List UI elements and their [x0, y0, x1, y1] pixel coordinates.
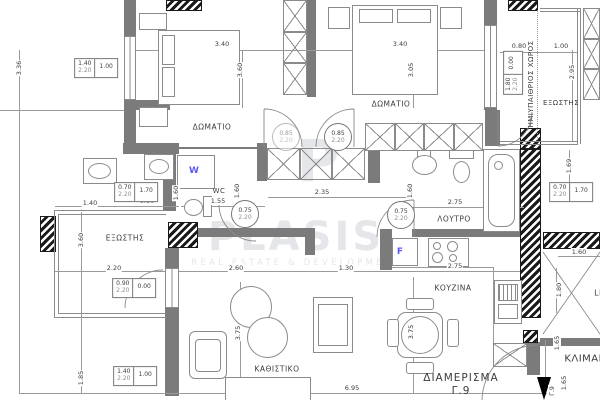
dimension-text: 2.35: [314, 188, 330, 196]
dimension-text: 3.40: [214, 40, 230, 48]
dimension-box: 0.702.201.70: [114, 182, 158, 202]
fridge-letter: F: [397, 247, 403, 257]
dimension-text: 3.60: [236, 62, 244, 78]
room-label-wc: WC: [213, 187, 226, 195]
dimension-box: 1.402.201.00: [113, 366, 157, 386]
room-label-staircase: ΚΛΙΜΑΚ: [564, 354, 600, 365]
dimension-box: 1.402.201.00: [74, 58, 118, 78]
dimension-text: 2.75: [447, 262, 463, 270]
door-dimension-circle: 0.752.20: [387, 201, 415, 229]
dimension-text: 1.65: [560, 375, 568, 391]
room-label-semi-open-space: ΗΜΙΥΠΑΙΘΡΙΟΣ ΧΩΡΟΣ: [527, 40, 535, 127]
room-label-living-room: ΚΑΘΙΣΤΙΚΟ: [254, 365, 299, 374]
room-label-bedroom-1: ΔΩΜΑΤΙΟ: [193, 123, 232, 132]
dimension-text: 1.69: [565, 158, 573, 174]
dimension-text: 6.95: [344, 384, 360, 392]
room-label-kitchen: ΚΟΥΖΙΝΑ: [435, 284, 472, 293]
room-label-lift: LI: [594, 289, 600, 298]
dimension-text: Γ.9: [548, 385, 556, 397]
dimension-text: 1.60: [172, 185, 180, 201]
dimension-text: 3.36: [15, 60, 23, 76]
dimension-text: 1.30: [338, 264, 354, 272]
apartment-title: ΔΙΑΜΕΡΙΣΜΑ: [423, 372, 498, 384]
dimension-text: 1.85: [77, 370, 85, 386]
dimension-text: 1.65: [553, 335, 561, 351]
dimension-text: 3.05: [407, 62, 415, 78]
dimension-text: 1.60: [571, 248, 587, 256]
dimension-box: 1.802.200.00: [503, 51, 523, 95]
dimension-text: 1.55: [210, 197, 226, 205]
dimension-text: 1.00: [553, 42, 569, 50]
dimension-text: 2.75: [447, 198, 463, 206]
room-label-bathroom: ΛΟΥΤΡΟ: [437, 215, 471, 224]
dimension-text: 1.80: [555, 282, 563, 298]
dimension-text: 3.75: [234, 325, 242, 341]
washing-machine-letter: W: [189, 166, 199, 176]
dimension-text: 3.40: [392, 40, 408, 48]
dimension-text: 1.40: [82, 199, 98, 207]
apartment-unit: Γ.9: [452, 385, 471, 397]
floor-plan-canvas: P PLASIS REAL ESTATE & DEVELOPMENT: [0, 0, 600, 400]
dimension-text: 2.20: [106, 264, 122, 272]
door-dimension-circle: 0.852.20: [324, 123, 352, 151]
dimension-text: 1.60: [233, 183, 241, 199]
door-dimension-circle: 0.752.20: [231, 200, 259, 228]
staircase-x: [543, 252, 600, 334]
dimension-text: 2.95: [568, 64, 576, 80]
dimension-text: 0.80: [511, 42, 527, 50]
dimension-box: 0.702.201.70: [549, 182, 593, 202]
dimension-text: 1.60: [406, 183, 414, 199]
door-dimension-circle: 0.852.20: [272, 123, 300, 151]
room-label-balcony-right: ΕΞΩΣΤΗΣ: [543, 99, 579, 107]
dimension-box: 0.902.200.00: [112, 278, 156, 298]
room-label-balcony-left: ΕΞΩΣΤΗΣ: [106, 234, 144, 243]
room-label-bedroom-2: ΔΩΜΑΤΙΟ: [372, 100, 411, 109]
dimension-text: 2.60: [228, 264, 244, 272]
dimension-text: 3.60: [77, 232, 85, 248]
dimension-text: 3.75: [407, 324, 415, 340]
